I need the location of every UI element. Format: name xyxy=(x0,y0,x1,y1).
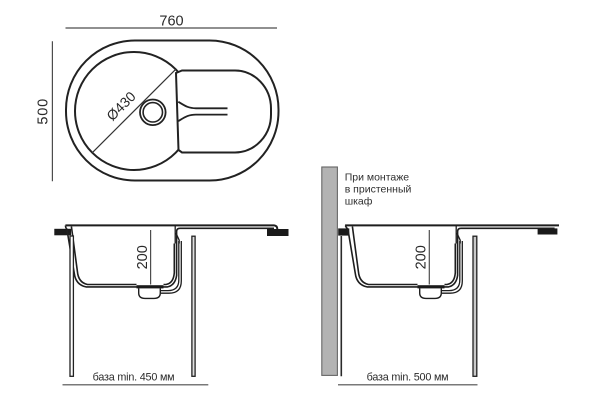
svg-text:база min. 450 мм: база min. 450 мм xyxy=(93,372,175,384)
svg-text:в пристенный: в пристенный xyxy=(345,183,412,195)
svg-text:760: 760 xyxy=(159,13,183,29)
svg-text:шкаф: шкаф xyxy=(345,195,373,207)
svg-text:200: 200 xyxy=(135,245,151,269)
svg-text:500: 500 xyxy=(35,98,51,125)
svg-text:200: 200 xyxy=(414,245,430,269)
svg-text:При монтаже: При монтаже xyxy=(345,171,410,183)
svg-text:база min. 500 мм: база min. 500 мм xyxy=(367,372,449,384)
